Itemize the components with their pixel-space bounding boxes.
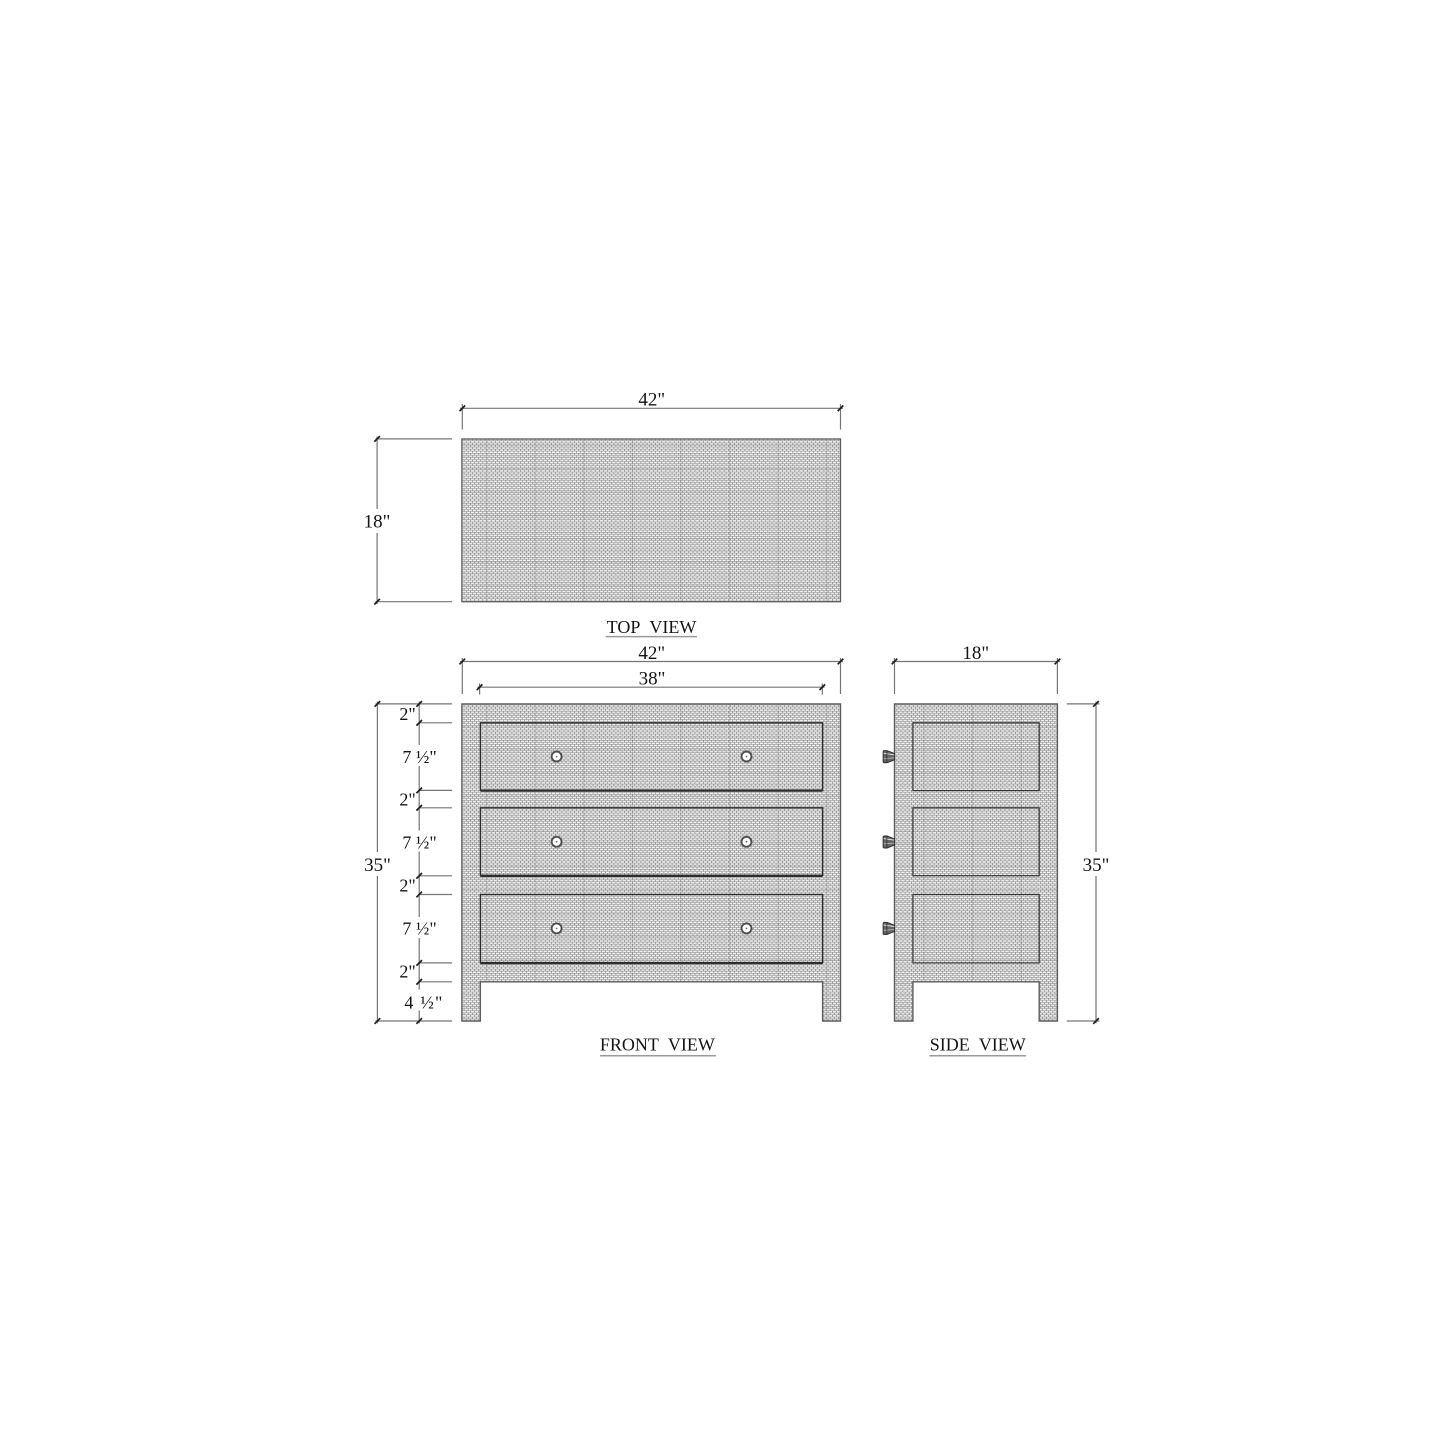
svg-text:SIDE VIEW: SIDE VIEW <box>930 1035 1026 1055</box>
svg-text:2": 2" <box>399 962 415 982</box>
svg-text:7 ½": 7 ½" <box>402 832 436 852</box>
svg-text:42": 42" <box>638 643 665 664</box>
svg-text:2": 2" <box>399 875 415 895</box>
svg-text:2": 2" <box>399 704 415 724</box>
svg-text:38": 38" <box>639 669 666 690</box>
svg-text:35": 35" <box>1083 855 1110 876</box>
svg-text:7 ½": 7 ½" <box>402 747 436 767</box>
svg-text:7 ½": 7 ½" <box>402 919 436 939</box>
svg-text:4 ½": 4 ½" <box>404 993 443 1013</box>
svg-text:42": 42" <box>638 390 665 411</box>
svg-text:TOP VIEW: TOP VIEW <box>607 617 697 637</box>
svg-text:18": 18" <box>364 512 391 533</box>
svg-text:FRONT VIEW: FRONT VIEW <box>600 1035 715 1055</box>
svg-text:2": 2" <box>399 789 415 809</box>
svg-text:18": 18" <box>962 643 989 664</box>
svg-text:35": 35" <box>364 855 391 876</box>
